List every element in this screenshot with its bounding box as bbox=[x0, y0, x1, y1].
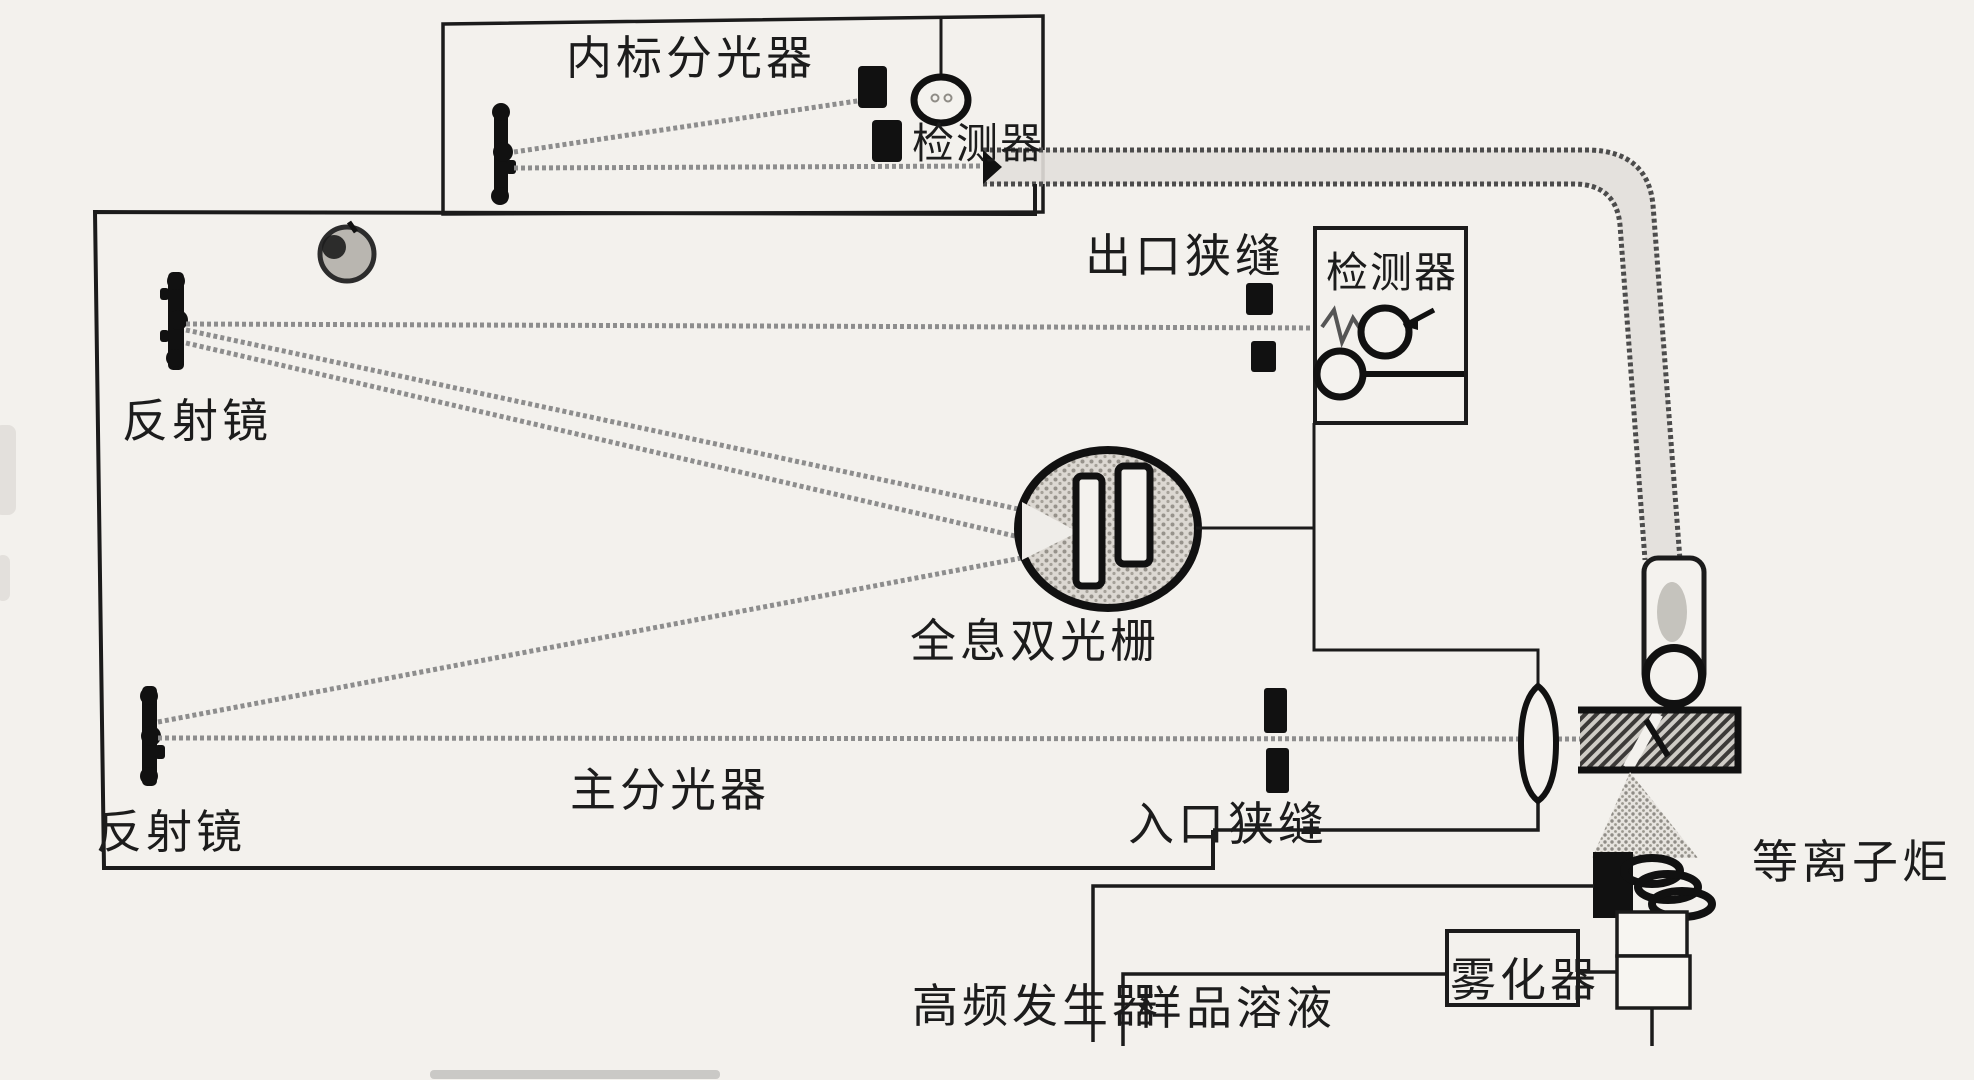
plasma-flame-icon bbox=[1592, 772, 1698, 858]
detector-cell-2-icon bbox=[1317, 351, 1363, 397]
mirror-top-icon bbox=[160, 272, 188, 370]
lens-icon bbox=[1521, 686, 1556, 801]
internal-slit-icon bbox=[858, 66, 902, 162]
label-plasma-torch: 等离子炬 bbox=[1752, 835, 1952, 889]
scan-smudge-bottom bbox=[430, 1070, 720, 1079]
diagram-canvas: 内标分光器 检测器 出口狭缝 检测器 反射镜 全息双光栅 主分光器 入口狭缝 反… bbox=[0, 0, 1974, 1080]
main-box bbox=[95, 184, 1538, 868]
label-grating: 全息双光栅 bbox=[910, 614, 1160, 668]
induction-coil-icon bbox=[1593, 852, 1712, 918]
detector-internal-icon bbox=[914, 18, 968, 123]
motor-icon bbox=[320, 222, 374, 281]
label-detector-top: 检测器 bbox=[912, 119, 1044, 168]
label-entrance-slit: 入口狭缝 bbox=[1128, 797, 1328, 851]
icp-spectrometer-diagram: 内标分光器 检测器 出口狭缝 检测器 反射镜 全息双光栅 主分光器 入口狭缝 反… bbox=[0, 0, 1974, 1080]
torch-body-icon bbox=[1617, 912, 1690, 1046]
window-assembly-icon bbox=[1578, 710, 1740, 770]
label-mirror-top: 反射镜 bbox=[122, 394, 272, 448]
grating-icon bbox=[1018, 450, 1198, 608]
label-detector-right: 检测器 bbox=[1326, 248, 1458, 297]
label-internal-standard-spectrometer: 内标分光器 bbox=[566, 31, 816, 85]
label-main-spectrometer: 主分光器 bbox=[570, 763, 770, 817]
label-sample-solution: 样品溶液 bbox=[1136, 981, 1336, 1035]
mirror-internal-icon bbox=[491, 103, 516, 205]
detector-cell-1-icon bbox=[1361, 308, 1409, 356]
label-exit-slit: 出口狭缝 bbox=[1085, 229, 1285, 283]
ball-joint-icon bbox=[1646, 648, 1702, 704]
label-mirror-bottom: 反射镜 bbox=[96, 805, 246, 859]
transfer-tube-icon bbox=[1644, 558, 1704, 704]
label-nebulizer: 雾化器 bbox=[1450, 953, 1600, 1007]
scan-smudge-left-1 bbox=[0, 425, 16, 515]
housing-connectors bbox=[1196, 423, 1538, 688]
scan-smudge-left-2 bbox=[0, 555, 10, 601]
label-hf-generator: 高频发生器 bbox=[912, 979, 1162, 1033]
main-beams bbox=[158, 324, 1585, 739]
